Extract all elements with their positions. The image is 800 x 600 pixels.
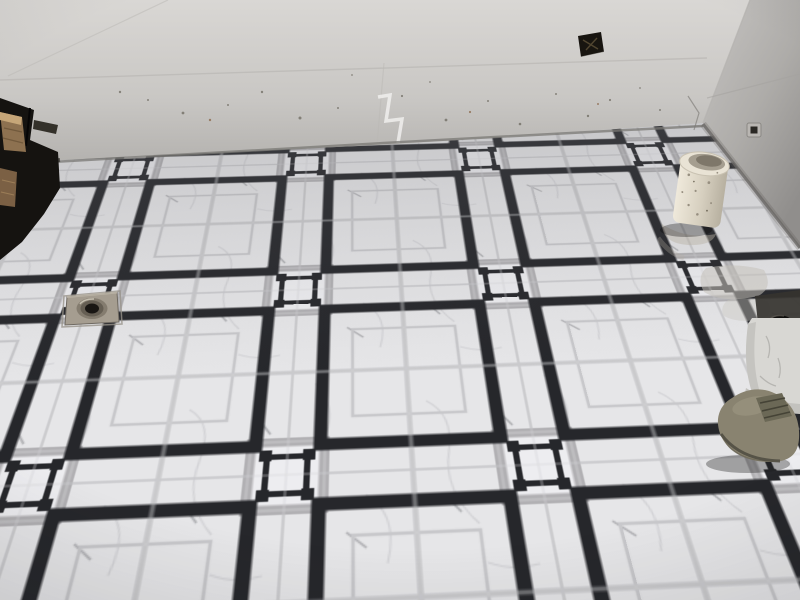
pvc-pipe bbox=[658, 146, 750, 262]
person-foot bbox=[688, 318, 800, 476]
bathroom-photo: Photograph of a bathroom under renovatio… bbox=[0, 0, 800, 600]
photo-caption: Photograph of a bathroom under renovatio… bbox=[0, 0, 1, 1]
wall-hole bbox=[578, 32, 604, 57]
floor-drain bbox=[60, 286, 124, 332]
drain-hole bbox=[85, 304, 99, 314]
wall-grout-line bbox=[0, 58, 707, 80]
